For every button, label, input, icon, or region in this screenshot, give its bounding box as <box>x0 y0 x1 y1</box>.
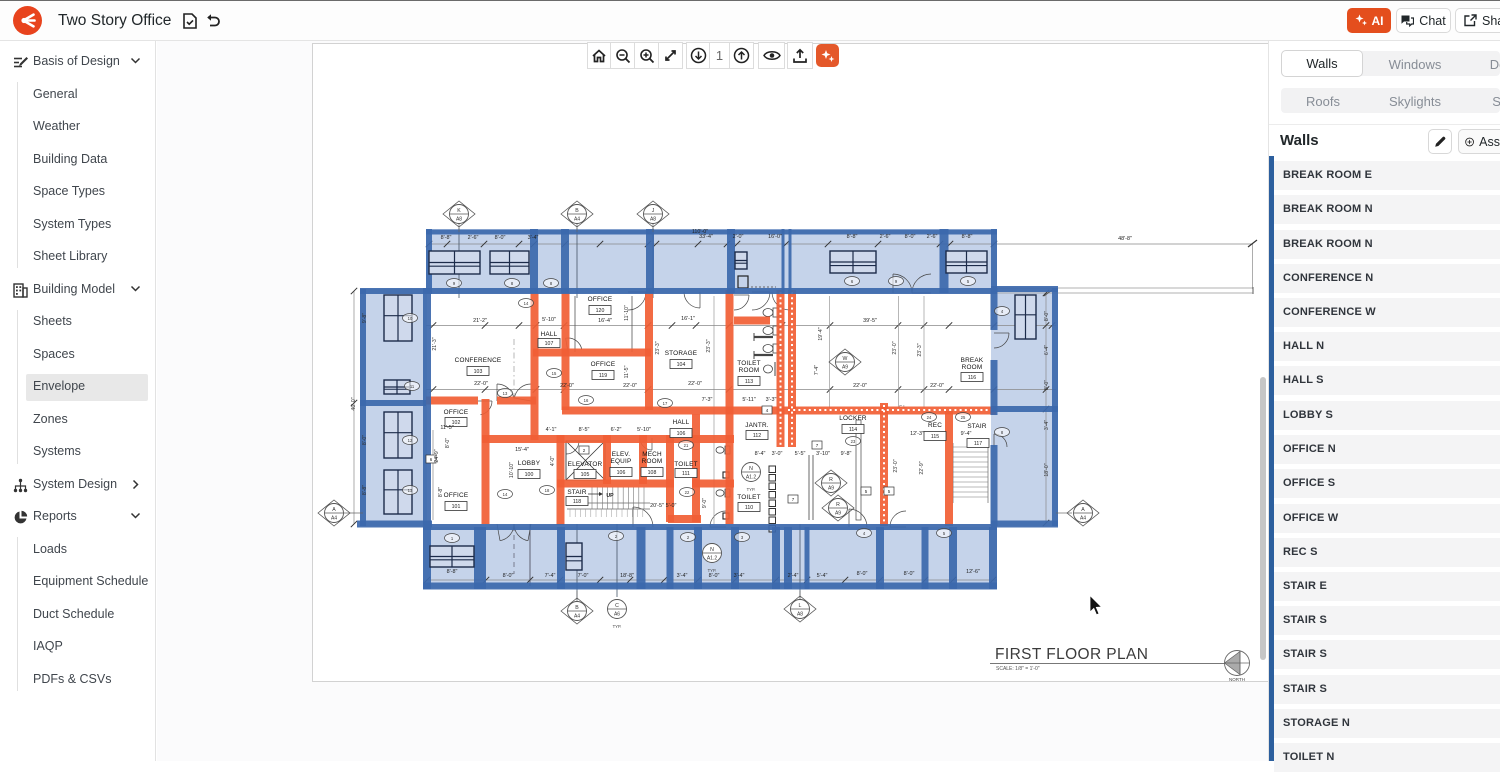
svg-text:14: 14 <box>524 301 529 306</box>
svg-text:22'-0": 22'-0" <box>474 381 488 387</box>
svg-text:8'-8": 8'-8" <box>962 234 973 240</box>
svg-text:22'-0": 22'-0" <box>688 381 702 387</box>
svg-text:UP: UP <box>606 493 614 499</box>
svg-text:114: 114 <box>849 427 857 433</box>
svg-text:18: 18 <box>545 488 550 493</box>
svg-text:12'-6": 12'-6" <box>966 569 980 575</box>
svg-text:JANTR.: JANTR. <box>745 422 769 429</box>
svg-text:STAIR: STAIR <box>967 423 987 430</box>
svg-text:7'-4": 7'-4" <box>545 573 556 579</box>
svg-text:11'-5": 11'-5" <box>440 425 453 431</box>
svg-text:12'-3": 12'-3" <box>910 431 924 437</box>
svg-text:OFFICE: OFFICE <box>444 409 469 416</box>
svg-text:24: 24 <box>927 415 932 420</box>
svg-text:25: 25 <box>961 415 966 420</box>
svg-text:A8: A8 <box>650 217 656 223</box>
svg-text:A8: A8 <box>456 217 462 223</box>
svg-text:13: 13 <box>503 391 508 396</box>
svg-text:OFFICE: OFFICE <box>588 296 613 303</box>
svg-text:106: 106 <box>617 470 626 476</box>
svg-text:3'-10": 3'-10" <box>816 451 830 457</box>
svg-text:16'-1": 16'-1" <box>681 316 695 322</box>
svg-text:8'-8": 8'-8" <box>447 569 458 575</box>
svg-text:8'-8": 8'-8" <box>847 234 858 240</box>
svg-text:111: 111 <box>682 471 690 477</box>
svg-text:13: 13 <box>408 488 413 493</box>
svg-text:10'-10": 10'-10" <box>509 462 515 478</box>
svg-text:A4: A4 <box>331 516 337 522</box>
svg-text:118: 118 <box>573 499 581 505</box>
svg-text:TYP.: TYP. <box>613 624 622 629</box>
svg-text:23'-3": 23'-3" <box>917 343 923 356</box>
svg-text:OFFICE: OFFICE <box>444 492 469 499</box>
svg-text:L: L <box>799 603 802 609</box>
svg-text:TOILET: TOILET <box>737 494 760 501</box>
svg-text:17: 17 <box>663 401 668 406</box>
svg-text:23'-3": 23'-3" <box>655 341 661 354</box>
svg-text:12: 12 <box>408 438 413 443</box>
svg-text:23'-0": 23'-0" <box>893 459 899 472</box>
svg-text:18'-8": 18'-8" <box>620 573 634 579</box>
svg-text:TOILET: TOILET <box>737 360 760 367</box>
svg-text:LOCKER: LOCKER <box>839 415 867 422</box>
svg-text:2'-4": 2'-4" <box>788 573 799 579</box>
svg-text:R: R <box>836 502 840 508</box>
svg-text:A6: A6 <box>614 612 620 618</box>
svg-text:23: 23 <box>851 439 856 444</box>
svg-text:22'-0": 22'-0" <box>623 383 637 389</box>
svg-text:W: W <box>843 356 848 362</box>
svg-text:5'-10": 5'-10" <box>637 427 651 433</box>
svg-text:107: 107 <box>545 341 554 347</box>
svg-text:HALL: HALL <box>673 419 690 426</box>
svg-text:14: 14 <box>503 492 508 497</box>
svg-text:119: 119 <box>599 373 607 379</box>
svg-text:J: J <box>652 208 655 214</box>
svg-text:5'-0": 5'-0" <box>666 503 677 509</box>
svg-text:A8: A8 <box>797 612 803 618</box>
svg-text:3'-0": 3'-0" <box>772 451 783 457</box>
svg-text:ROOM: ROOM <box>962 364 983 371</box>
svg-text:5'-4": 5'-4" <box>817 573 828 579</box>
svg-text:NORTH: NORTH <box>1229 677 1245 682</box>
svg-text:2'-0": 2'-0" <box>733 234 744 240</box>
svg-text:2'-6": 2'-6" <box>880 234 891 240</box>
svg-text:B: B <box>575 208 579 214</box>
svg-text:8'-0": 8'-0" <box>503 573 514 579</box>
svg-text:K: K <box>457 208 461 214</box>
svg-text:21'-2": 21'-2" <box>473 318 487 324</box>
svg-text:8'-5": 8'-5" <box>579 427 590 433</box>
svg-text:3'-3": 3'-3" <box>766 397 777 403</box>
svg-text:108: 108 <box>648 470 657 476</box>
svg-text:117: 117 <box>974 441 982 447</box>
svg-text:HALL: HALL <box>541 331 558 338</box>
svg-text:8'-0": 8'-0" <box>904 571 915 577</box>
svg-text:48'-8": 48'-8" <box>1118 236 1132 242</box>
svg-text:ELEVATOR: ELEVATOR <box>568 461 603 468</box>
svg-text:R: R <box>829 477 833 483</box>
svg-text:TOILET: TOILET <box>674 461 697 468</box>
svg-text:9'-8": 9'-8" <box>362 313 368 323</box>
svg-text:23'-0": 23'-0" <box>892 341 898 354</box>
svg-text:3'-4": 3'-4" <box>677 573 688 579</box>
svg-text:7'-4": 7'-4" <box>814 365 820 375</box>
svg-text:7'-0": 7'-0" <box>578 573 589 579</box>
svg-text:11'-10": 11'-10" <box>624 305 630 321</box>
svg-text:18'-0": 18'-0" <box>1044 463 1050 476</box>
svg-text:A1.2: A1.2 <box>746 475 757 481</box>
svg-text:ROOM: ROOM <box>739 367 760 374</box>
svg-text:115: 115 <box>931 434 939 440</box>
svg-text:8'-0": 8'-0" <box>709 573 720 579</box>
svg-text:8'-0": 8'-0" <box>857 571 868 577</box>
svg-text:113: 113 <box>745 379 753 385</box>
svg-text:4'-1": 4'-1" <box>546 427 557 433</box>
svg-text:19'-4": 19'-4" <box>818 327 824 340</box>
svg-text:LOBBY: LOBBY <box>518 460 541 467</box>
svg-text:4'-0": 4'-0" <box>550 456 556 466</box>
svg-text:110: 110 <box>745 505 753 511</box>
svg-text:16'-0": 16'-0" <box>768 234 782 240</box>
svg-text:8'-0": 8'-0" <box>1044 311 1050 321</box>
svg-text:FIRST FLOOR PLAN: FIRST FLOOR PLAN <box>995 646 1148 663</box>
svg-text:N: N <box>710 547 714 553</box>
svg-text:ELEV.: ELEV. <box>612 451 631 458</box>
svg-text:A1.2: A1.2 <box>707 556 718 562</box>
svg-text:46'-0": 46'-0" <box>351 397 357 410</box>
svg-text:5'-10": 5'-10" <box>542 317 556 323</box>
svg-text:A: A <box>1081 507 1085 513</box>
svg-text:11: 11 <box>410 384 415 389</box>
svg-text:8'-0": 8'-0" <box>495 235 506 241</box>
svg-text:SCALE: 1/8" = 1'-0": SCALE: 1/8" = 1'-0" <box>996 666 1040 672</box>
svg-text:22'-0": 22'-0" <box>853 383 867 389</box>
svg-text:23'-3": 23'-3" <box>706 339 712 352</box>
svg-text:9'-0": 9'-0" <box>702 498 708 508</box>
svg-text:BREAK: BREAK <box>961 357 984 364</box>
svg-text:104: 104 <box>677 362 686 368</box>
svg-text:A4: A4 <box>574 217 580 223</box>
svg-text:8'-8": 8'-8" <box>438 487 444 497</box>
svg-text:7'-3": 7'-3" <box>702 397 713 403</box>
svg-text:N: N <box>749 466 753 472</box>
svg-text:22'-9": 22'-9" <box>919 461 925 474</box>
svg-text:8'-0": 8'-0" <box>905 234 916 240</box>
svg-text:A9: A9 <box>828 486 834 492</box>
svg-text:120: 120 <box>596 308 605 314</box>
svg-text:MECH: MECH <box>642 451 662 458</box>
svg-text:20'-5": 20'-5" <box>650 503 664 509</box>
svg-text:9'-8": 9'-8" <box>841 451 852 457</box>
svg-text:8'-0": 8'-0" <box>1044 380 1050 390</box>
svg-text:116: 116 <box>968 375 976 381</box>
svg-text:100: 100 <box>525 472 534 478</box>
svg-text:6'-4": 6'-4" <box>1044 345 1050 355</box>
svg-text:10: 10 <box>408 316 413 321</box>
svg-text:8'-4": 8'-4" <box>755 451 766 457</box>
svg-text:A9: A9 <box>835 511 841 517</box>
svg-text:112: 112 <box>753 433 761 439</box>
svg-text:110'-0": 110'-0" <box>692 229 708 235</box>
svg-text:22'-0": 22'-0" <box>930 383 944 389</box>
svg-text:8'-8": 8'-8" <box>441 235 452 241</box>
svg-text:22: 22 <box>685 490 690 495</box>
svg-text:8'-0": 8'-0" <box>362 435 368 445</box>
svg-text:A4: A4 <box>1080 516 1086 522</box>
svg-text:5'-11": 5'-11" <box>742 397 755 403</box>
svg-text:TYP.: TYP. <box>708 568 717 573</box>
svg-text:TYP.: TYP. <box>747 487 756 492</box>
svg-text:15: 15 <box>552 371 557 376</box>
svg-text:OFFICE: OFFICE <box>591 361 616 368</box>
svg-text:A: A <box>332 507 336 513</box>
svg-text:16: 16 <box>584 398 589 403</box>
svg-text:5'-5": 5'-5" <box>795 451 806 457</box>
svg-text:15'-4": 15'-4" <box>515 447 529 453</box>
svg-text:21'-3": 21'-3" <box>432 337 438 350</box>
svg-text:103: 103 <box>474 369 483 375</box>
svg-text:A4: A4 <box>574 614 580 620</box>
svg-text:6'-2": 6'-2" <box>611 427 622 433</box>
svg-text:9'-4": 9'-4" <box>961 431 972 437</box>
svg-text:EQUIP: EQUIP <box>611 458 632 465</box>
svg-text:101: 101 <box>452 504 461 510</box>
svg-text:8'-0": 8'-0" <box>445 438 451 448</box>
svg-text:21: 21 <box>684 443 689 448</box>
svg-text:3'-4": 3'-4" <box>528 235 539 241</box>
svg-text:2'-6": 2'-6" <box>468 235 479 241</box>
svg-text:105: 105 <box>581 472 590 478</box>
svg-text:STAIR: STAIR <box>567 489 587 496</box>
svg-text:39'-5": 39'-5" <box>863 318 877 324</box>
svg-text:2'-6": 2'-6" <box>927 234 938 240</box>
svg-text:REC: REC <box>928 422 942 429</box>
svg-text:3'-4": 3'-4" <box>1044 420 1050 430</box>
svg-text:STORAGE: STORAGE <box>665 350 698 357</box>
svg-text:CONFERENCE: CONFERENCE <box>455 357 502 364</box>
svg-text:C: C <box>615 603 619 609</box>
svg-text:3'-4": 3'-4" <box>734 573 745 579</box>
svg-text:11'-5": 11'-5" <box>624 365 630 378</box>
svg-text:22'-0": 22'-0" <box>560 383 574 389</box>
svg-text:B: B <box>575 605 579 611</box>
svg-text:106: 106 <box>677 431 686 437</box>
svg-text:A9: A9 <box>842 365 848 371</box>
svg-text:24'-9": 24'-9" <box>434 449 440 462</box>
svg-text:ROOM: ROOM <box>642 458 663 465</box>
svg-text:16'-4": 16'-4" <box>598 318 612 324</box>
svg-text:8'-8": 8'-8" <box>362 485 368 495</box>
